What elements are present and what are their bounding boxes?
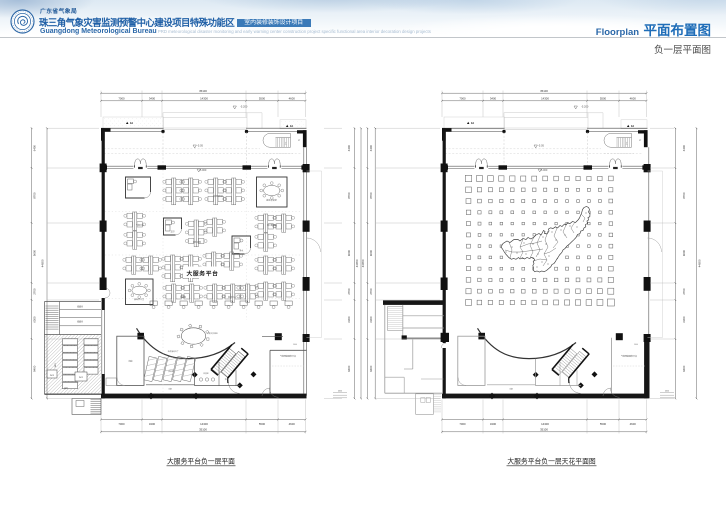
- svg-text:-5.200: -5.200: [240, 105, 248, 109]
- svg-text:9400: 9400: [347, 365, 351, 372]
- svg-text:9400: 9400: [33, 365, 37, 372]
- svg-text:5500: 5500: [259, 422, 266, 426]
- svg-text:9400: 9400: [682, 365, 686, 372]
- svg-text:3400: 3400: [490, 96, 497, 100]
- svg-text:5600: 5600: [634, 344, 638, 346]
- svg-text:茶水: 茶水: [239, 249, 243, 253]
- svg-text:1A: 1A: [130, 121, 133, 125]
- svg-text:走廊: 走廊: [168, 387, 172, 391]
- svg-text:走廊: 走廊: [509, 387, 513, 391]
- svg-text:4600: 4600: [630, 422, 637, 426]
- svg-text:7000: 7000: [118, 422, 125, 426]
- svg-text:气象预报服务平台: 气象预报服务平台: [280, 354, 296, 358]
- svg-text:上: 上: [285, 141, 288, 145]
- svg-text:大服务平台负一层平面: 大服务平台负一层平面: [167, 457, 235, 466]
- svg-text:6400: 6400: [369, 145, 373, 152]
- svg-text:接待/会议室: 接待/会议室: [266, 198, 277, 202]
- svg-text:4650: 4650: [665, 390, 669, 392]
- svg-text:14300: 14300: [200, 96, 208, 100]
- svg-text:44650: 44650: [355, 259, 359, 267]
- svg-text:9600: 9600: [682, 249, 686, 256]
- svg-text:3400: 3400: [149, 96, 156, 100]
- svg-text:5500: 5500: [259, 96, 266, 100]
- svg-text:气象预报服务平台: 气象预报服务平台: [621, 354, 637, 358]
- svg-text:1A: 1A: [631, 124, 634, 128]
- svg-text:3400: 3400: [149, 422, 156, 426]
- svg-text:2700: 2700: [369, 288, 373, 295]
- svg-text:14300: 14300: [541, 96, 549, 100]
- svg-text:2700: 2700: [33, 288, 37, 295]
- svg-text:44650: 44650: [41, 259, 45, 267]
- svg-text:机房: 机房: [128, 359, 132, 363]
- svg-text:8700: 8700: [369, 192, 373, 199]
- svg-text:储藏间: 储藏间: [77, 304, 83, 308]
- svg-text:35100: 35100: [540, 89, 548, 93]
- svg-text:44650: 44650: [698, 259, 702, 267]
- svg-text:8700: 8700: [682, 192, 686, 199]
- svg-text:-5.200: -5.200: [581, 105, 589, 109]
- svg-text:9400: 9400: [369, 365, 373, 372]
- svg-text:WC3: WC3: [50, 375, 54, 377]
- svg-text:2700: 2700: [682, 288, 686, 295]
- svg-text:5500: 5500: [600, 96, 607, 100]
- svg-text:6400: 6400: [33, 145, 37, 152]
- svg-text:4600: 4600: [630, 96, 637, 100]
- svg-text:-5.05: -5.05: [538, 144, 544, 148]
- svg-text:5500: 5500: [600, 422, 607, 426]
- svg-text:7000: 7000: [459, 96, 466, 100]
- svg-text:9600: 9600: [369, 249, 373, 256]
- svg-text:文印: 文印: [170, 230, 174, 234]
- svg-text:4600: 4600: [289, 96, 296, 100]
- svg-text:接待/会议室: 接待/会议室: [134, 297, 144, 301]
- svg-text:5600: 5600: [293, 344, 297, 346]
- svg-text:7000: 7000: [459, 422, 466, 426]
- svg-text:14300: 14300: [541, 422, 549, 426]
- svg-text:-5.05: -5.05: [197, 144, 203, 148]
- svg-text:35100: 35100: [540, 427, 548, 431]
- svg-text:WC2: WC2: [79, 377, 83, 379]
- svg-text:6300: 6300: [682, 316, 686, 323]
- svg-text:6300: 6300: [369, 316, 373, 323]
- svg-text:6300: 6300: [347, 316, 351, 323]
- svg-text:休息区: 休息区: [203, 371, 209, 375]
- svg-text:6400: 6400: [347, 145, 351, 152]
- svg-text:大服务平台负一层天花平面图: 大服务平台负一层天花平面图: [507, 457, 596, 466]
- svg-text:9600: 9600: [33, 249, 37, 256]
- svg-text:6400: 6400: [682, 145, 686, 152]
- svg-text:44650: 44650: [361, 259, 365, 267]
- svg-text:咨询接待大厅: 咨询接待大厅: [168, 349, 179, 353]
- svg-text:4600: 4600: [289, 422, 296, 426]
- svg-text:大服务平台: 大服务平台: [187, 269, 219, 277]
- svg-text:WC1: WC1: [55, 362, 57, 367]
- svg-text:9600: 9600: [347, 249, 351, 256]
- svg-text:1A: 1A: [471, 121, 474, 125]
- svg-text:上: 上: [626, 141, 629, 145]
- svg-text:储藏间: 储藏间: [77, 320, 83, 324]
- svg-text:1T: 1T: [639, 140, 642, 142]
- svg-text:14300: 14300: [200, 422, 208, 426]
- svg-text:2700: 2700: [347, 288, 351, 295]
- svg-text:8700: 8700: [347, 192, 351, 199]
- svg-text:4650: 4650: [338, 390, 342, 392]
- svg-text:7000: 7000: [118, 96, 125, 100]
- svg-text:1T: 1T: [298, 140, 301, 142]
- svg-text:6300: 6300: [33, 316, 37, 323]
- svg-text:1A: 1A: [290, 124, 293, 128]
- svg-text:35100: 35100: [199, 89, 207, 93]
- svg-text:3400: 3400: [490, 422, 497, 426]
- svg-text:35100: 35100: [199, 427, 207, 431]
- svg-text:8700: 8700: [33, 192, 37, 199]
